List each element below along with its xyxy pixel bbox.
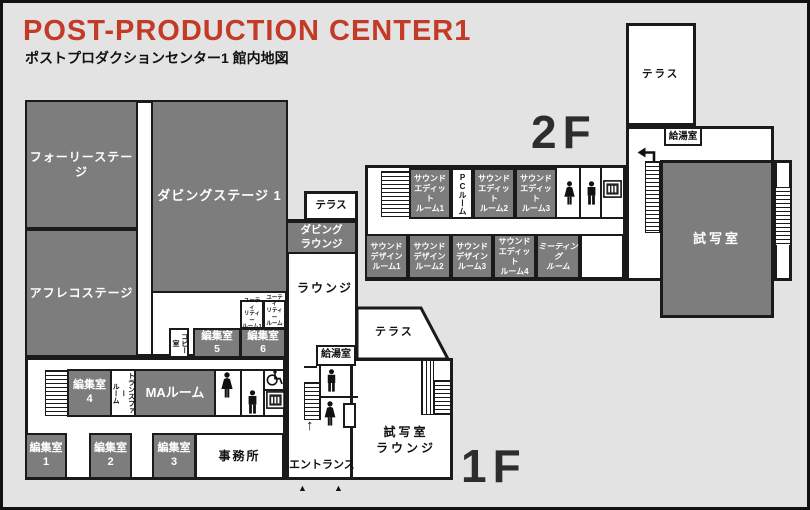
room-ma: MAルーム bbox=[134, 369, 216, 417]
wall bbox=[304, 366, 317, 368]
room-edit-4: 編集室 4 bbox=[67, 369, 112, 417]
room-sound-edit-3: サウンド エディット ルーム3 bbox=[515, 168, 557, 219]
up-arrow: ↑ bbox=[306, 417, 314, 434]
floor-label-1f: 1F bbox=[461, 439, 527, 493]
room-afreco-stage: アフレコステージ bbox=[25, 229, 138, 357]
wall bbox=[263, 369, 265, 417]
woman-icon bbox=[220, 372, 234, 398]
room-sound-edit-1: サウンド エディット ルーム1 bbox=[409, 168, 451, 219]
entrance-label: エントランス bbox=[289, 458, 355, 472]
room-copy: コピー室 bbox=[169, 328, 189, 358]
stairs bbox=[45, 370, 68, 416]
room-transfer: トランスファー ルーム bbox=[110, 369, 136, 417]
room-sound-design-3: サウンド デザイン ルーム3 bbox=[451, 234, 493, 279]
room-dubbing-lounge: ダビング ラウンジ bbox=[286, 221, 357, 254]
entrance-door-marker: ▲ bbox=[334, 483, 343, 493]
stairs bbox=[421, 360, 434, 415]
woman-icon bbox=[323, 401, 337, 426]
wall bbox=[600, 168, 602, 219]
room-unlabeled bbox=[580, 234, 624, 279]
room-kyuto-1f: 給湯室 bbox=[316, 345, 356, 366]
wall bbox=[579, 168, 581, 219]
room-sound-design-2: サウンド デザイン ルーム2 bbox=[408, 234, 451, 279]
room-edit-1: 編集室 1 bbox=[25, 433, 67, 479]
man-icon bbox=[246, 390, 259, 414]
wall bbox=[320, 396, 358, 398]
wall bbox=[557, 217, 624, 219]
entrance-door-marker: ▲ bbox=[298, 483, 307, 493]
wheelchair-icon bbox=[266, 370, 283, 386]
woman-icon bbox=[563, 181, 576, 205]
floor-map: POST-PRODUCTION CENTER1 ポストプロダクションセンター1 … bbox=[0, 0, 810, 510]
room-edit-6: 編集室 6 bbox=[240, 328, 286, 358]
wall bbox=[151, 293, 153, 358]
room-screening: 試写室 bbox=[660, 160, 774, 318]
man-icon bbox=[585, 181, 598, 205]
closet bbox=[343, 403, 356, 428]
room-terrace-small: テラス bbox=[304, 191, 358, 221]
room-edit-2: 編集室 2 bbox=[89, 433, 132, 479]
room-kyuto-2f: 給湯室 bbox=[664, 127, 702, 146]
man-icon bbox=[325, 369, 338, 392]
room-edit-3: 編集室 3 bbox=[152, 433, 196, 479]
stairs bbox=[776, 187, 790, 245]
page-title: POST-PRODUCTION CENTER1 bbox=[23, 15, 471, 48]
stairs bbox=[645, 161, 660, 233]
wall bbox=[216, 415, 286, 417]
room-sound-edit-2: サウンド エディット ルーム2 bbox=[473, 168, 515, 219]
screening-lounge-label: 試写室 ラウンジ bbox=[370, 425, 442, 456]
stairs bbox=[381, 171, 411, 217]
room-meeting: ミーティング ルーム bbox=[536, 234, 580, 279]
elevator-icon bbox=[603, 180, 622, 198]
room-dubbing-stage-1: ダビングステージ 1 bbox=[151, 100, 288, 293]
floor-label-2f: 2F bbox=[531, 105, 597, 159]
room-office: 事務所 bbox=[195, 433, 284, 479]
room-utility-2: ユーティ リティー ルーム2 bbox=[263, 300, 286, 329]
page-subtitle: ポストプロダクションセンター1 館内地図 bbox=[25, 48, 289, 68]
room-sound-design-1: サウンド デザイン ルーム1 bbox=[365, 234, 408, 279]
lounge-label: ラウンジ bbox=[297, 281, 353, 297]
room-pc: PCルーム bbox=[451, 168, 473, 219]
elevator-icon bbox=[266, 391, 285, 409]
stairs bbox=[434, 380, 451, 415]
room-sound-edit-4: サウンド エディット ルーム4 bbox=[493, 234, 536, 279]
room-utility-1: ユーティ リティー ルーム1 bbox=[240, 300, 264, 329]
f2-terrace-label: テラス bbox=[642, 68, 679, 82]
stairs bbox=[304, 382, 320, 420]
room-foley-stage: フォーリーステージ bbox=[25, 100, 138, 229]
room-edit-5: 編集室 5 bbox=[193, 328, 241, 358]
f1-terrace-label: テラス bbox=[375, 325, 414, 339]
wall bbox=[240, 369, 242, 417]
f1-screening-lounge-block bbox=[350, 358, 453, 480]
